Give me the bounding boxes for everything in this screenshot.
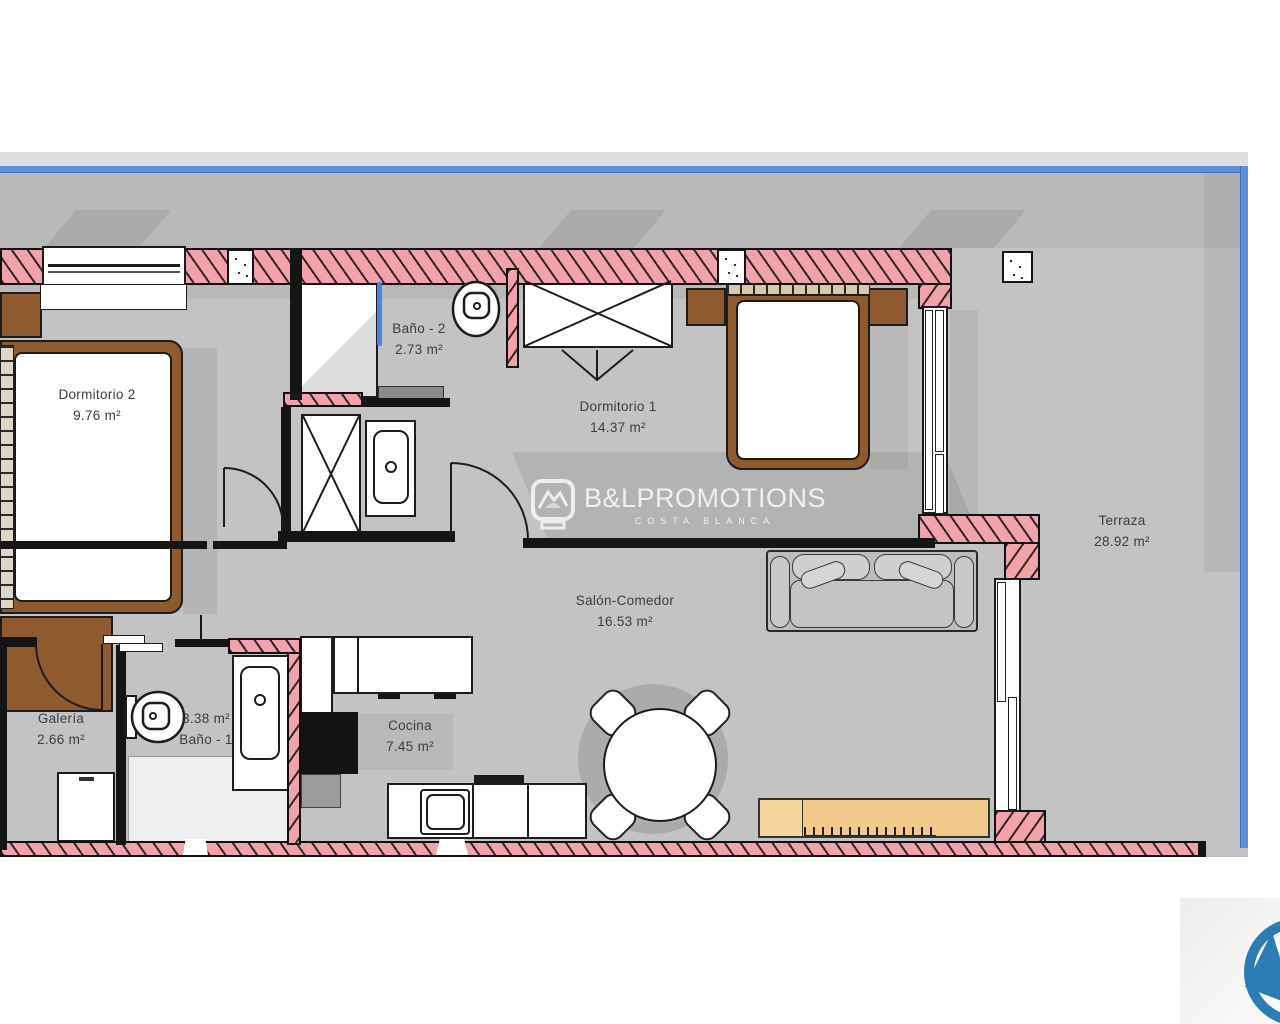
wall-corner-dorm1-se bbox=[918, 514, 1040, 544]
room-name: Baño - 2 bbox=[349, 318, 489, 339]
sliding-door-salon-terraza bbox=[994, 578, 1021, 812]
nightstand-dorm1-right bbox=[868, 288, 908, 326]
wall-bano2-right bbox=[506, 268, 519, 368]
wall-nook-top-black bbox=[363, 398, 450, 407]
room-label-galeria: Galería 2.66 m² bbox=[0, 708, 122, 750]
wall-terraza-jog bbox=[1004, 542, 1040, 580]
kitchen-lower-counter bbox=[387, 783, 587, 839]
wall-dorm2-south-b bbox=[213, 541, 287, 549]
room-area: 7.45 m² bbox=[350, 736, 470, 757]
room-label-dormitorio-1: Dormitorio 1 14.37 m² bbox=[538, 396, 698, 438]
sofa-armrest-right bbox=[954, 556, 974, 628]
room-name: Baño - 1 bbox=[146, 729, 266, 750]
kitchen-upper-cabinets bbox=[333, 636, 473, 694]
floorplan-canvas: Dormitorio 2 9.76 m² Baño - 2 2.73 m² Do… bbox=[0, 0, 1280, 1024]
wall-bano1-top-corner bbox=[228, 638, 301, 654]
wall-bano1-right bbox=[287, 645, 301, 845]
washbasin-hall bbox=[365, 420, 416, 517]
nightstand-dorm2-top bbox=[0, 292, 42, 338]
kitchen-cabinet-tall bbox=[300, 636, 333, 714]
watermark-brand: B&LPROMOTIONS bbox=[584, 483, 826, 514]
room-area: 16.53 m² bbox=[545, 611, 705, 632]
watermark: B&LPROMOTIONS COSTA BLANCA bbox=[530, 478, 826, 530]
kitchen-sink bbox=[420, 789, 470, 835]
corner-logo-backplate bbox=[1180, 898, 1280, 1024]
wall-nook-bottom bbox=[278, 531, 455, 542]
wall-nook-left bbox=[281, 407, 291, 538]
wall-bano2-left bbox=[290, 250, 302, 400]
room-label-bano-2: Baño - 2 2.73 m² bbox=[349, 318, 489, 360]
sliding-door-galeria-b bbox=[119, 643, 163, 652]
shadow-terraza-right bbox=[1204, 172, 1240, 572]
wall-galeria-north-b bbox=[175, 639, 228, 647]
wall-corner-salon-se bbox=[994, 810, 1046, 843]
kitchen-gray-counter bbox=[301, 774, 341, 808]
wall-dorm1-south bbox=[523, 538, 935, 548]
room-area: 2.66 m² bbox=[0, 729, 122, 750]
terrace-railing-top bbox=[0, 166, 1247, 173]
room-name: Dormitorio 1 bbox=[538, 396, 698, 417]
room-name: Terraza bbox=[1042, 510, 1202, 531]
threshold-2 bbox=[436, 839, 468, 855]
threshold-1 bbox=[183, 839, 208, 855]
room-label-terraza: Terraza 28.92 m² bbox=[1042, 510, 1202, 552]
washing-machine bbox=[57, 772, 115, 842]
brand-house-icon bbox=[530, 478, 576, 530]
sideboard-vent-teeth bbox=[804, 827, 936, 836]
door-jamb-line bbox=[200, 615, 202, 640]
room-area: 14.37 m² bbox=[538, 417, 698, 438]
bed-dorm2-headboard bbox=[0, 345, 14, 609]
room-area: 28.92 m² bbox=[1042, 531, 1202, 552]
kitchen-hinge-tick-2 bbox=[434, 693, 456, 699]
wall-bottom bbox=[0, 841, 1205, 857]
window-sill bbox=[40, 284, 187, 310]
room-area: 2.73 m² bbox=[349, 339, 489, 360]
terrace-railing-right bbox=[1240, 166, 1248, 848]
watermark-subtitle: COSTA BLANCA bbox=[584, 516, 826, 526]
sideboard bbox=[758, 798, 990, 838]
wall-dorm2-south-a bbox=[0, 541, 207, 549]
nightstand-dorm1-left bbox=[686, 288, 726, 326]
kitchen-hinge-tick-1 bbox=[378, 693, 400, 699]
room-area: 3.38 m² bbox=[146, 708, 266, 729]
shadow-dorm2-bed bbox=[183, 348, 217, 614]
column-1 bbox=[227, 249, 254, 285]
room-label-bano-1: 3.38 m² Baño - 1 bbox=[146, 708, 266, 750]
wardrobe-hall bbox=[301, 414, 361, 534]
bed-dorm1-mattress bbox=[736, 300, 860, 460]
column-2 bbox=[717, 249, 746, 285]
window-top bbox=[42, 246, 186, 288]
room-label-dormitorio-2: Dormitorio 2 9.76 m² bbox=[17, 384, 177, 426]
room-label-salon-comedor: Salón-Comedor 16.53 m² bbox=[545, 590, 705, 632]
room-name: Cocina bbox=[350, 715, 470, 736]
window-dorm1-terraza bbox=[922, 306, 948, 514]
column-terraza bbox=[1002, 251, 1033, 283]
room-name: Salón-Comedor bbox=[545, 590, 705, 611]
wall-bottom-end-cap bbox=[1198, 841, 1206, 857]
room-name: Galería bbox=[0, 708, 122, 729]
dining-table bbox=[603, 708, 717, 822]
nightstand-dorm2-bottom bbox=[0, 616, 113, 712]
sofa-armrest-left bbox=[770, 556, 790, 628]
room-label-cocina: Cocina 7.45 m² bbox=[350, 715, 470, 757]
room-area: 9.76 m² bbox=[17, 405, 177, 426]
room-name: Dormitorio 2 bbox=[17, 384, 177, 405]
wardrobe-dorm1 bbox=[523, 278, 673, 348]
